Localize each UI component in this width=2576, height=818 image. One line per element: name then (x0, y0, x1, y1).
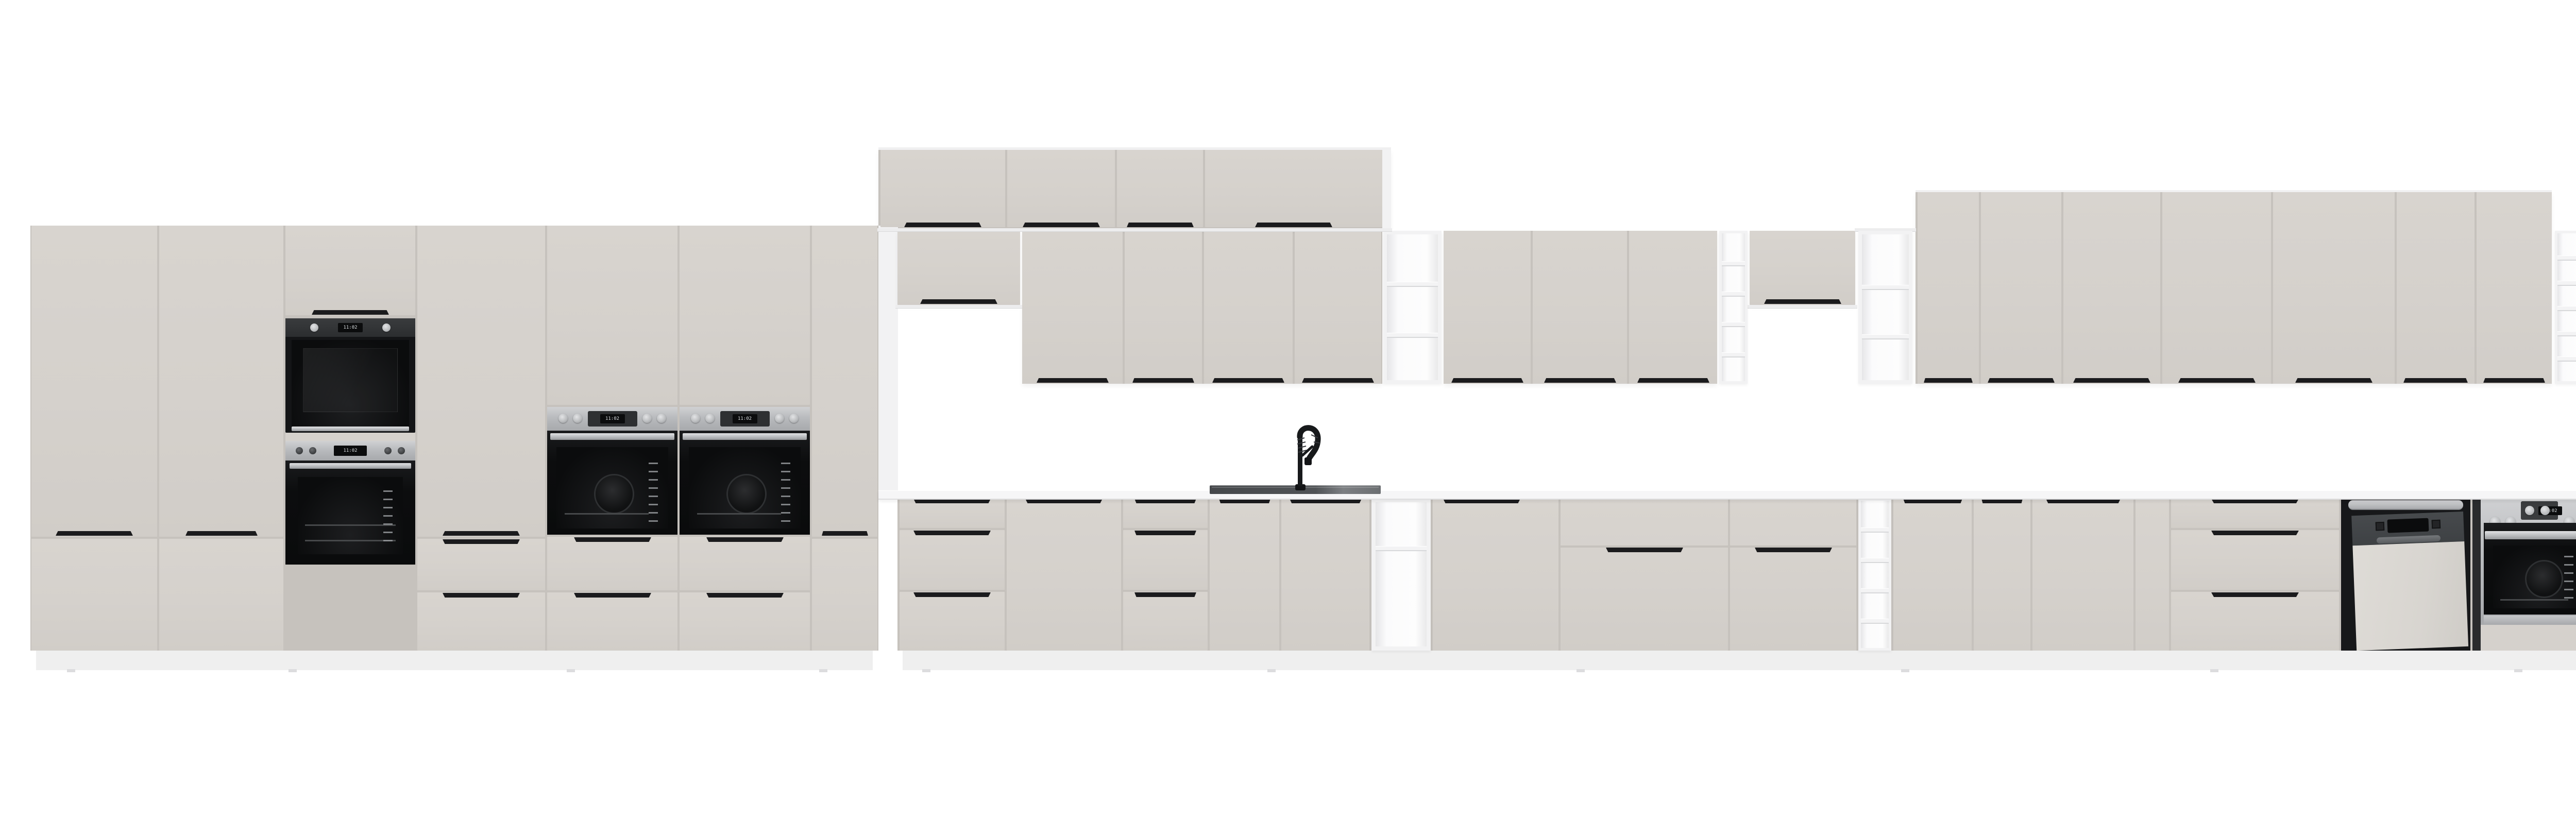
shelf (2557, 255, 2576, 261)
cabinet-foot (1577, 669, 1585, 672)
appliance-tower-top-door[interactable] (285, 226, 415, 315)
drawer-front[interactable] (900, 530, 1005, 590)
oven-window (298, 477, 403, 554)
door-handle (1637, 378, 1709, 383)
drawer-front[interactable] (417, 539, 545, 590)
drawer-front[interactable] (1123, 530, 1208, 590)
knob (573, 414, 582, 423)
base-cabinet-door[interactable] (1007, 498, 1121, 651)
door-handle (2403, 378, 2468, 383)
oven-rack (697, 513, 781, 515)
open-shelf-unit (1858, 231, 1912, 384)
dishwasher-panel (2352, 541, 2468, 651)
door-handle (706, 593, 784, 598)
pot-in-oven (726, 474, 767, 514)
oven-door (2484, 523, 2576, 615)
door-handle (2073, 378, 2150, 383)
door-handle (1132, 378, 1194, 383)
drawer-front[interactable] (2171, 498, 2339, 528)
door-handle (443, 593, 520, 598)
door-handle (1544, 378, 1616, 383)
oven-window (556, 447, 668, 529)
drawer-front[interactable] (1123, 592, 1208, 651)
oven-handle-bar (290, 463, 411, 469)
door-handle (913, 531, 991, 535)
wall-cabinet-door[interactable] (1444, 231, 1531, 384)
clock-text: 11:02 (605, 416, 619, 421)
oven-door (680, 431, 810, 535)
base-cabinet-door[interactable] (2032, 498, 2133, 651)
dishwasher-display (2387, 518, 2429, 533)
clock-display: 11:02 (600, 414, 625, 423)
door-handle (2295, 378, 2372, 383)
cabinet-foot (922, 669, 930, 672)
oven-handle-bar (2485, 531, 2576, 539)
pot-in-oven (2525, 560, 2563, 598)
door-handle (1451, 378, 1523, 383)
door-handle (1764, 299, 1841, 304)
cabinet-foot (819, 669, 827, 672)
faucet-icon (1272, 406, 1329, 491)
tall-cabinet-door[interactable] (31, 226, 157, 537)
built-in-oven[interactable]: 11:02 (285, 441, 415, 565)
cabinet-foot (567, 669, 575, 672)
oven-control-panel: 11:02 (285, 441, 415, 461)
knob (558, 414, 568, 423)
knob (398, 447, 405, 454)
drawer-front[interactable] (2171, 592, 2339, 651)
door-handle (443, 539, 520, 544)
oven-tower-door[interactable] (547, 226, 677, 405)
shelf (1861, 588, 1889, 593)
oven-filler-front (2481, 625, 2576, 651)
door-handle (1134, 592, 1196, 597)
door-handle (1924, 378, 1973, 383)
base-cabinet-door[interactable] (1974, 498, 2030, 651)
door-handle (2211, 592, 2299, 597)
shelf (1376, 546, 1427, 551)
clock-text: 11:02 (738, 416, 752, 421)
drawer-front[interactable] (547, 537, 677, 590)
door-handle (1212, 378, 1284, 383)
wall-cabinet-door[interactable] (1981, 192, 2061, 384)
shelf (2557, 356, 2576, 362)
window-reflection (303, 348, 398, 412)
drawer-front[interactable] (417, 592, 545, 651)
door-handle (1988, 378, 2055, 383)
oven-door (547, 431, 677, 535)
shelf-interior (1861, 501, 1889, 648)
top-cabinet-door[interactable] (1117, 150, 1203, 227)
tall-cabinet-door[interactable] (159, 226, 283, 537)
wall-cabinet-door[interactable] (1918, 192, 1979, 384)
door-handle (2483, 378, 2545, 383)
knob (775, 414, 784, 423)
dishwasher[interactable] (2341, 498, 2470, 651)
drawer-front[interactable] (1123, 498, 1208, 528)
dishwasher-door (2351, 512, 2468, 651)
oven-control-panel: 11:02 (680, 407, 810, 431)
open-shelf-base-unit (1371, 498, 1431, 651)
shelf-interior (1387, 234, 1438, 380)
open-shelf-column (2555, 231, 2576, 384)
door-handle (574, 593, 651, 598)
clock-text: 11:02 (343, 325, 357, 330)
drawer-front[interactable] (900, 592, 1005, 651)
open-shelf-column (1719, 231, 1748, 384)
kitchen-render-canvas: 11:0211:0211:0211:0211:02 (0, 0, 2576, 818)
top-cabinet-door[interactable] (1007, 150, 1115, 227)
cabinet-foot (67, 669, 75, 672)
shelf (2557, 306, 2576, 311)
wall-cabinet-short-door[interactable] (1750, 231, 1855, 305)
wall-cabinet-door[interactable] (2397, 192, 2475, 384)
wall-cabinet-door[interactable] (1295, 231, 1381, 384)
base-cabinet-door[interactable] (1893, 498, 1972, 651)
tall-plinth (36, 651, 873, 670)
oven-window (2493, 546, 2576, 608)
clock-display: 11:02 (338, 323, 363, 332)
cabinet-foot (1267, 669, 1276, 672)
wall-cabinet-door[interactable] (2162, 192, 2271, 384)
door-handle (312, 310, 389, 315)
cabinet-foot (1901, 669, 1909, 672)
door-handle (185, 531, 258, 536)
built-in-oven[interactable]: 11:02 (547, 407, 677, 535)
shelf-interior (1376, 502, 1427, 646)
door-handle (1255, 223, 1332, 227)
knob (642, 414, 652, 423)
knob (705, 414, 715, 423)
shelf (1861, 558, 1889, 563)
open-shelf-unit (1383, 231, 1442, 384)
oven-rack (305, 524, 396, 526)
combi-control-strip: 11:02 (285, 318, 415, 337)
drawer-front[interactable] (547, 592, 677, 651)
door-handle (904, 223, 981, 227)
oven-control-panel: 11:02 (547, 407, 677, 431)
cabinet-foot (289, 669, 297, 672)
knob (657, 414, 666, 423)
knob (2540, 506, 2550, 515)
dishwasher-button (2432, 520, 2441, 529)
oven-window (292, 340, 409, 427)
shelf (1722, 322, 1745, 327)
shelf (1387, 282, 1438, 287)
drawer-line (1561, 546, 1728, 548)
shelf (1722, 352, 1745, 357)
knob (309, 447, 316, 454)
knob (691, 414, 700, 423)
oven-window (689, 447, 801, 529)
base-cabinet-door[interactable] (1561, 498, 1728, 651)
tall-cabinet-door[interactable] (812, 226, 877, 537)
tall-cabinet-door[interactable] (159, 539, 283, 651)
drawer-front[interactable] (900, 498, 1005, 528)
appliance-tower-filler (285, 433, 415, 441)
clock-text: 11:02 (343, 448, 357, 453)
oven-body: 11:02 (2481, 498, 2576, 626)
wall-cabinet-bottom-shelf (895, 305, 1022, 309)
dishwasher-control-band (2351, 512, 2464, 546)
tall-cabinet-door[interactable] (417, 226, 545, 537)
knob (384, 447, 392, 454)
base-cabinet-door[interactable] (1433, 498, 1558, 651)
top-row-bottom-shelf (877, 228, 1392, 232)
oven-handle-bar (550, 433, 674, 440)
door-handle (1134, 531, 1196, 535)
shelf (1387, 333, 1438, 338)
shelf (1862, 285, 1909, 290)
door-handle (1606, 548, 1683, 552)
knob (382, 323, 391, 332)
oven-rack (2500, 599, 2568, 601)
clock-display: 11:02 (733, 414, 757, 423)
wall-cabinet-door[interactable] (1204, 231, 1293, 384)
filler-front (2136, 498, 2169, 651)
wall-cabinet-door[interactable] (1629, 231, 1717, 384)
door-handle (56, 531, 133, 536)
shelf (1861, 619, 1889, 624)
door-handle (913, 592, 991, 597)
wall-cabinet-door[interactable] (1125, 231, 1202, 384)
oven-door (285, 461, 415, 565)
countertop (878, 490, 2576, 500)
base-plinth (903, 651, 2576, 670)
top-cabinet-door[interactable] (1205, 150, 1382, 227)
oven-tower-door[interactable] (680, 226, 810, 405)
tall-cabinet-door[interactable] (812, 539, 877, 651)
wall-cabinet-door[interactable] (1533, 231, 1627, 384)
dishwasher-tub-rim (2348, 500, 2463, 510)
knob (789, 414, 799, 423)
wall-cabinet-door[interactable] (1022, 231, 1123, 384)
built-in-combi-microwave-oven[interactable]: 11:02 (285, 318, 415, 433)
door-handle (1127, 223, 1194, 227)
tall-cabinet-door[interactable] (31, 539, 157, 651)
built-in-oven[interactable]: 11:02 (2472, 498, 2576, 651)
shelf (1862, 334, 1909, 339)
oven-bottom-strip (2484, 616, 2576, 625)
door-handle (2211, 531, 2299, 535)
door-handle (1023, 223, 1100, 227)
base-cabinet-door[interactable] (1730, 498, 1856, 651)
door-handle (1755, 548, 1832, 552)
drawer-front[interactable] (2171, 530, 2339, 590)
shelf (2557, 331, 2576, 336)
door-handle (1302, 378, 1374, 383)
built-in-oven[interactable]: 11:02 (680, 407, 810, 535)
open-shelf-base-column (1858, 498, 1891, 651)
drawer-line (1730, 546, 1856, 548)
oven-rack-side (2564, 556, 2573, 605)
drawer-front[interactable] (680, 537, 810, 590)
oven-rack (565, 513, 649, 515)
shelf-interior (1862, 234, 1909, 380)
oven-handle-bar (292, 427, 409, 431)
door-handle (574, 537, 651, 542)
wall-cabinet-door[interactable] (2273, 192, 2395, 384)
door-handle (822, 531, 868, 536)
oven-rack-side (649, 463, 658, 524)
oven-handle-bar (683, 433, 807, 440)
wall-cabinet-bottom-shelf (1748, 305, 1857, 309)
sink-cabinet-door[interactable] (1281, 498, 1369, 651)
cabinet-foot (2210, 669, 2218, 672)
top-row-side-panel (1382, 150, 1391, 231)
oven-display-panel: 11:02 (2521, 501, 2558, 520)
door-handle (2178, 378, 2256, 383)
wall-cabinet-door[interactable] (2477, 192, 2552, 384)
oven-display: 11:02 (720, 411, 770, 427)
shelf (1861, 527, 1889, 533)
knob (2525, 506, 2534, 515)
dishwasher-button (2376, 522, 2385, 531)
wall-cabinet-door[interactable] (2063, 192, 2160, 384)
oven-rack (305, 540, 396, 541)
knob (296, 447, 303, 454)
oven-rack-side (781, 463, 790, 524)
sink-cabinet-door[interactable] (1210, 498, 1279, 651)
pot-in-oven (594, 474, 634, 514)
door-handle (1037, 378, 1109, 383)
shelf-interior (1722, 233, 1745, 381)
door-handle (920, 299, 997, 304)
shelf (2557, 281, 2576, 286)
door-handle (706, 537, 784, 542)
cabinet-foot (2514, 669, 2522, 672)
top-cabinet-door[interactable] (880, 150, 1005, 227)
faucet[interactable] (1272, 406, 1329, 491)
shelf (1722, 261, 1745, 266)
oven-gap-shadow (2472, 498, 2481, 651)
oven-display: 11:02 (588, 411, 637, 427)
drawer-front[interactable] (680, 592, 810, 651)
door-handle (443, 531, 520, 536)
knob (310, 323, 318, 332)
clock-display: 11:02 (334, 446, 367, 456)
tall-side-panel (878, 226, 898, 492)
shelf (1722, 292, 1745, 297)
oven-rack-side (383, 490, 393, 547)
wall-cabinet-short-door[interactable] (897, 231, 1020, 305)
